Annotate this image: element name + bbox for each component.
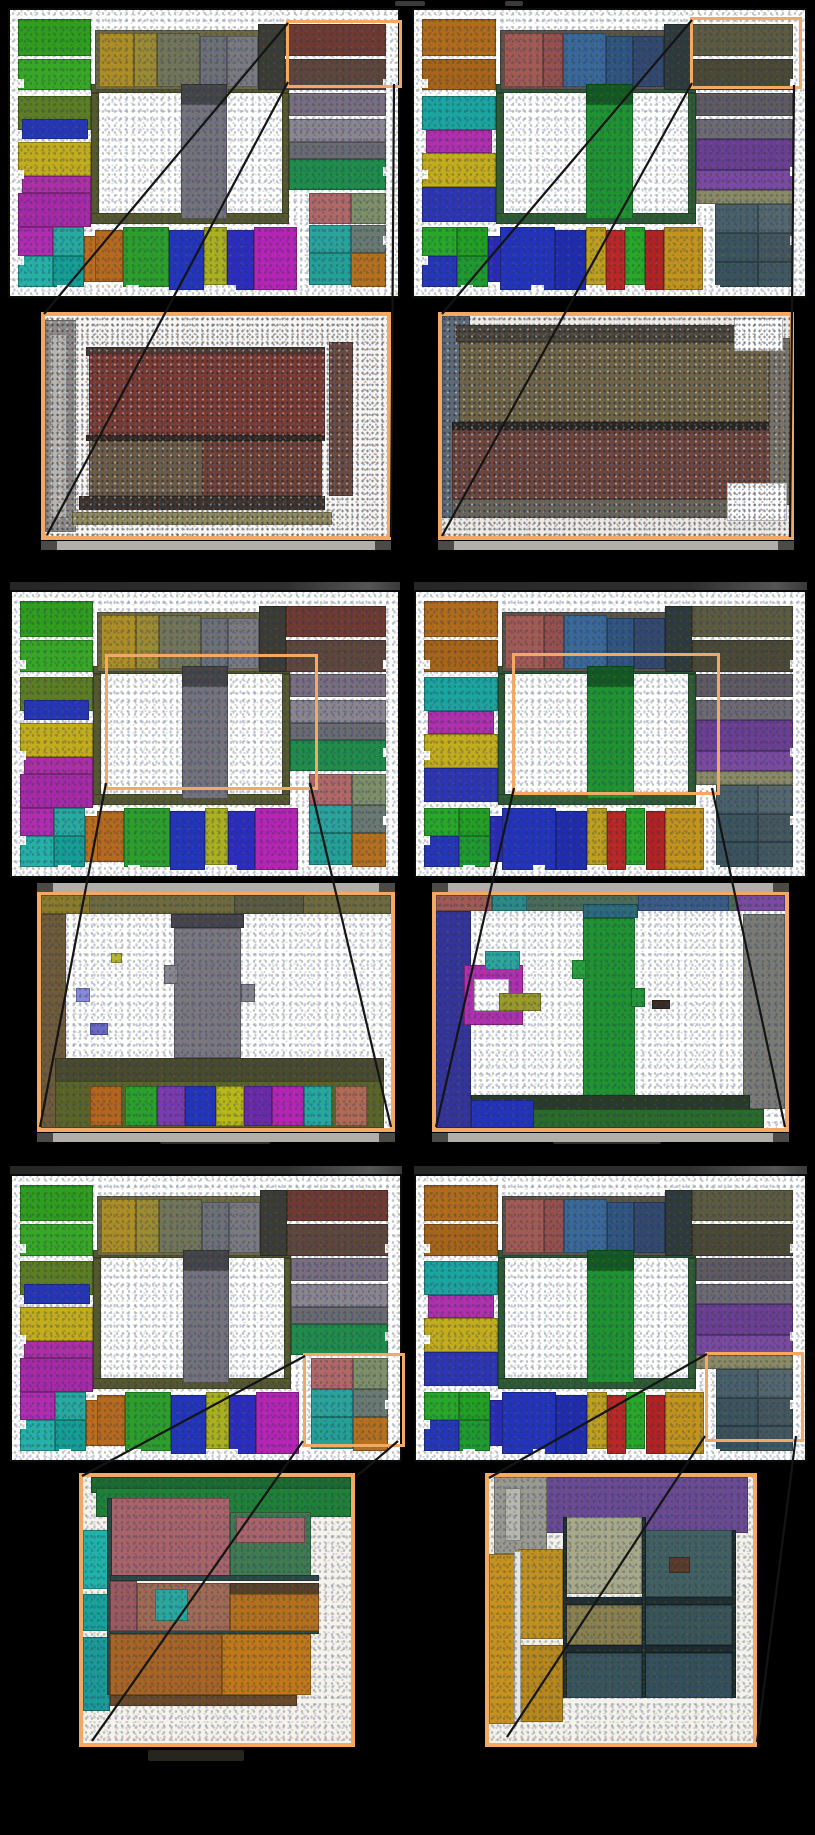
segment-block — [20, 640, 93, 671]
segment-block — [587, 1270, 634, 1384]
segment-block — [110, 1581, 137, 1632]
segment-block — [489, 1554, 515, 1724]
segment-block — [758, 785, 793, 813]
scan-gap-notch — [302, 865, 314, 874]
segment-block — [424, 1392, 459, 1420]
scan-gap-notch — [59, 1449, 71, 1458]
scan-gap-notch — [225, 1449, 237, 1458]
segment-block — [216, 1086, 244, 1126]
scan-gap-notch — [14, 1244, 26, 1253]
segment-block — [736, 895, 785, 911]
segment-block — [422, 59, 496, 90]
segment-block — [459, 1420, 490, 1451]
segment-block — [424, 808, 459, 836]
segment-block — [424, 677, 498, 711]
segment-block — [688, 1258, 696, 1383]
segment-block — [155, 1589, 187, 1621]
segment-block — [291, 1324, 388, 1355]
segment-block — [228, 811, 255, 871]
zoom-region-box-r1-left — [286, 20, 402, 88]
segment-block — [543, 33, 563, 87]
scan-gap-notch — [516, 11, 529, 20]
segment-block — [272, 1086, 304, 1126]
segment-block — [55, 1392, 86, 1420]
segment-block — [123, 227, 170, 287]
scan-gap-notch — [58, 865, 70, 874]
segment-block — [424, 1185, 498, 1222]
zoom-inset-row3-left — [79, 1473, 355, 1747]
segment-block — [54, 808, 85, 836]
segment-block — [185, 1086, 217, 1126]
segment-block — [72, 512, 332, 525]
segment-block — [457, 227, 488, 256]
strip-end-cap — [773, 1133, 789, 1142]
segment-block — [424, 640, 498, 671]
segment-block — [544, 1199, 563, 1253]
segment-block — [626, 808, 645, 865]
segment-block — [20, 1224, 94, 1255]
segment-block — [606, 36, 633, 87]
segment-block — [456, 325, 769, 343]
segment-block — [587, 1392, 606, 1449]
segment-block — [24, 1284, 90, 1304]
segment-block — [97, 811, 124, 862]
segment-block — [587, 808, 606, 865]
segment-block — [664, 227, 703, 290]
segment-block — [124, 808, 170, 868]
segment-block — [286, 606, 386, 637]
segment-block — [732, 1530, 736, 1698]
segment-block — [136, 1199, 159, 1253]
segment-block — [518, 1645, 563, 1722]
segment-block — [563, 33, 606, 87]
segment-block — [79, 496, 325, 509]
strip-end-cap — [778, 541, 794, 550]
inset-caption-strip — [438, 541, 794, 550]
scan-gap-notch — [463, 865, 475, 874]
segment-block — [289, 159, 386, 190]
segment-block — [566, 1605, 643, 1645]
zoom-inset-row1-right — [438, 312, 794, 540]
scan-gap-notch — [688, 1177, 700, 1186]
segment-block — [125, 1392, 172, 1452]
segment-block — [471, 1100, 534, 1128]
scan-gap-notch — [617, 11, 630, 20]
segment-block — [422, 153, 496, 187]
segment-block — [625, 227, 645, 284]
scan-gap-notch — [790, 1244, 802, 1253]
scan-gap-notch — [57, 285, 69, 294]
segment-block — [18, 19, 92, 56]
segment-block — [200, 36, 227, 87]
segment-block — [83, 1637, 110, 1711]
zoom-region-box-r2-left — [105, 654, 318, 790]
scan-gap-notch — [126, 285, 138, 294]
panel-top-bar — [10, 1166, 402, 1174]
strip-end-cap — [773, 883, 789, 892]
segment-block — [631, 988, 645, 1007]
segment-block — [170, 811, 205, 871]
zoom-region-box-r2-right — [512, 653, 720, 795]
scan-gap-notch — [533, 1449, 545, 1458]
scan-gap-notch — [113, 1177, 125, 1186]
segment-block — [86, 435, 325, 442]
segment-block — [110, 1498, 231, 1578]
segment-block — [254, 227, 297, 290]
inset-caption-strip — [41, 541, 391, 550]
segment-block — [607, 1395, 626, 1455]
scan-gap-notch — [385, 1244, 397, 1253]
segment-block — [424, 1224, 498, 1255]
segment-block — [291, 1307, 388, 1324]
scan-gap-notch — [790, 748, 802, 757]
segment-block — [514, 1551, 521, 1721]
segment-block — [227, 36, 258, 87]
scan-gap-notch — [112, 593, 124, 602]
segment-block — [696, 119, 794, 139]
segment-block — [607, 811, 626, 871]
segment-block — [351, 253, 386, 287]
scan-gap-notch — [688, 593, 700, 602]
segment-block — [502, 1392, 556, 1454]
segment-block — [309, 253, 352, 284]
scan-gap-notch — [14, 751, 26, 760]
panel-top-bar — [10, 582, 400, 590]
segment-block — [424, 1352, 498, 1386]
segment-block — [492, 895, 527, 911]
segment-block — [260, 1190, 287, 1255]
segment-block — [157, 33, 200, 87]
segment-block — [502, 808, 556, 870]
segment-block — [436, 895, 492, 911]
segment-block — [500, 227, 555, 290]
zoom-inset-row1-left — [41, 312, 391, 540]
scan-gap-notch — [790, 236, 803, 245]
scan-gap-notch — [418, 1335, 430, 1344]
panel-top-bar — [414, 1166, 807, 1174]
segment-block — [583, 904, 639, 918]
segment-block — [41, 895, 391, 914]
scan-gap-notch — [383, 236, 395, 245]
segment-block — [53, 227, 84, 256]
scan-gap-notch — [224, 865, 236, 874]
segment-block — [504, 33, 543, 87]
scan-gap-notch — [416, 256, 429, 265]
segment-block — [696, 1284, 793, 1304]
segment-block — [642, 1517, 646, 1698]
segment-block — [24, 1341, 94, 1358]
segment-block — [758, 204, 793, 233]
segment-block — [459, 808, 490, 836]
scan-gap-notch — [385, 1332, 397, 1341]
segment-block — [53, 256, 84, 287]
zoom-region-box-r3-left — [303, 1353, 405, 1447]
scan-gap-notch — [618, 1177, 630, 1186]
segment-block — [652, 1000, 669, 1009]
segment-block — [24, 757, 93, 774]
segment-block — [645, 230, 665, 290]
segment-block — [329, 342, 353, 496]
segment-block — [428, 1295, 494, 1318]
segment-block — [496, 93, 504, 219]
segment-block — [41, 895, 90, 914]
segment-block — [696, 93, 794, 116]
segment-block — [715, 262, 758, 288]
scan-gap-notch — [12, 170, 24, 179]
scan-gap-notch — [383, 816, 395, 825]
segment-block — [181, 104, 228, 218]
segment-block — [309, 833, 351, 864]
inset-caption-strip — [37, 883, 395, 892]
scan-gap-notch — [707, 285, 720, 294]
strip-end-cap — [41, 541, 57, 550]
scan-gap-notch — [416, 79, 429, 88]
scan-gap-notch — [128, 1449, 140, 1458]
segment-block — [758, 233, 793, 262]
segment-block — [309, 805, 351, 833]
segment-block — [634, 1202, 665, 1253]
segment-block — [183, 1270, 230, 1384]
segment-block — [586, 227, 606, 284]
scan-gap-notch — [284, 1177, 296, 1186]
segment-block — [734, 318, 783, 351]
segment-block — [289, 142, 386, 159]
segment-block — [291, 1258, 388, 1281]
scan-gap-notch — [418, 1244, 430, 1253]
zoom-region-box-r1-right — [690, 17, 802, 89]
segment-block — [20, 1392, 55, 1420]
segment-block — [202, 441, 322, 496]
scan-gap-notch — [629, 285, 642, 294]
strip-end-cap — [375, 541, 391, 550]
segment-block — [692, 1224, 793, 1255]
segment-block — [485, 951, 520, 970]
segment-block — [564, 1199, 607, 1253]
segment-block — [696, 170, 794, 190]
segment-block — [715, 233, 758, 262]
segment-block — [256, 1392, 299, 1454]
scan-gap-notch — [383, 167, 395, 176]
segment-block — [230, 1594, 318, 1631]
segment-block — [282, 93, 290, 219]
segment-block — [18, 193, 92, 227]
scan-gap-notch — [418, 660, 430, 669]
strip-end-cap — [379, 883, 395, 892]
segment-block — [424, 768, 498, 802]
segment-block — [645, 1653, 732, 1698]
segment-block — [93, 1258, 101, 1383]
segment-block — [692, 606, 793, 637]
inset-caption-strip — [432, 1133, 789, 1142]
segment-block — [335, 1086, 367, 1126]
scan-gap-notch — [533, 865, 545, 874]
segment-block — [89, 353, 325, 434]
strip-end-cap — [432, 883, 448, 892]
scan-gap-notch — [282, 11, 294, 20]
segment-block — [769, 338, 790, 505]
cropped-text-remnant — [148, 1750, 244, 1761]
segment-block — [125, 1086, 157, 1126]
cropped-text-remnant — [395, 1, 425, 6]
segment-block — [457, 256, 488, 287]
segment-block — [284, 1258, 292, 1383]
zoom-inset-row2-right — [432, 891, 789, 1132]
segment-block — [171, 914, 245, 928]
segment-block — [202, 1202, 229, 1253]
segment-block — [289, 119, 386, 142]
segment-block — [669, 1557, 690, 1573]
segment-block — [626, 1392, 645, 1449]
strip-end-cap — [438, 541, 454, 550]
segment-block — [583, 918, 635, 1100]
segment-block — [24, 700, 90, 720]
scan-gap-notch — [418, 1420, 430, 1429]
segment-block — [494, 1477, 547, 1554]
scan-gap-notch — [14, 1420, 26, 1429]
segment-block — [20, 808, 55, 836]
scan-gap-notch — [790, 1332, 802, 1341]
segment-block — [255, 808, 297, 870]
scan-gap-notch — [212, 11, 224, 20]
segment-block — [76, 988, 90, 1002]
scan-gap-notch — [708, 865, 720, 874]
segment-block — [566, 1645, 643, 1653]
scan-gap-notch — [12, 256, 24, 265]
segment-block — [91, 93, 99, 219]
segment-block — [309, 225, 352, 254]
strip-end-cap — [37, 883, 53, 892]
segment-block — [665, 1392, 704, 1454]
segment-block — [93, 674, 101, 799]
segment-block — [20, 1185, 94, 1222]
segment-block — [645, 1597, 732, 1605]
segment-block — [556, 1395, 587, 1455]
segment-block — [304, 1086, 332, 1126]
segment-block — [758, 842, 793, 868]
segment-block — [696, 1258, 793, 1281]
segment-block — [18, 227, 53, 256]
scan-gap-notch — [12, 79, 24, 88]
scan-gap-notch — [418, 836, 430, 845]
scan-gap-notch — [213, 593, 225, 602]
segment-block — [422, 187, 496, 221]
scan-gap-notch — [630, 1449, 642, 1458]
inset-caption-strip — [37, 1133, 395, 1142]
segment-block — [222, 1634, 310, 1695]
segment-block — [101, 1199, 136, 1253]
segment-block — [22, 176, 92, 193]
segment-block — [424, 734, 498, 768]
segment-block — [206, 1392, 229, 1449]
segment-block — [205, 808, 228, 865]
segment-block — [758, 262, 793, 288]
segment-block — [586, 104, 633, 218]
segment-block — [111, 953, 122, 962]
segment-block — [291, 1284, 388, 1307]
segment-block — [50, 334, 67, 519]
segment-block — [665, 1190, 692, 1255]
strip-end-cap — [432, 1133, 448, 1142]
scan-gap-notch — [282, 593, 294, 602]
callout-line — [757, 1436, 796, 1742]
segment-block — [606, 230, 626, 290]
segment-block — [20, 601, 93, 638]
segment-block — [633, 36, 664, 87]
segment-block — [422, 96, 496, 130]
segment-block — [95, 230, 122, 281]
segment-block — [164, 965, 178, 984]
panel-top-bar — [414, 582, 807, 590]
segment-block — [646, 1395, 665, 1455]
segment-block — [566, 1653, 643, 1698]
segment-block — [352, 774, 387, 805]
segment-block — [287, 1190, 388, 1221]
scan-gap-notch — [461, 285, 474, 294]
segment-block — [556, 811, 587, 871]
strip-end-cap — [37, 1133, 53, 1142]
scan-gap-notch — [383, 660, 395, 669]
segment-block — [566, 1517, 643, 1594]
strip-end-cap — [379, 1133, 395, 1142]
segment-block — [229, 1202, 260, 1253]
segment-block — [716, 785, 759, 813]
segment-block — [452, 422, 776, 431]
segment-block — [20, 1307, 94, 1341]
segment-block — [90, 1086, 122, 1126]
segment-block — [241, 984, 255, 1003]
segment-block — [692, 1190, 793, 1221]
scan-gap-notch — [531, 285, 544, 294]
segment-block — [459, 836, 490, 867]
segment-block — [309, 193, 352, 224]
scan-gap-notch — [301, 285, 313, 294]
segment-block — [572, 960, 586, 979]
segment-block — [97, 1395, 124, 1446]
segment-block — [716, 814, 759, 842]
segment-block — [289, 93, 386, 116]
segment-block — [696, 190, 794, 204]
segment-block — [110, 1575, 319, 1580]
segment-block — [498, 674, 506, 799]
segment-block — [20, 1358, 94, 1392]
segment-block — [18, 59, 92, 90]
segment-block — [664, 24, 691, 90]
segment-block — [55, 1420, 86, 1451]
scan-gap-notch — [790, 660, 802, 669]
segment-block — [426, 130, 492, 153]
segment-block — [134, 33, 157, 87]
segment-block — [352, 805, 387, 833]
segment-block — [428, 711, 494, 734]
scan-gap-notch — [303, 1449, 315, 1458]
segment-block — [229, 1395, 256, 1455]
scan-gap-notch — [14, 836, 26, 845]
segment-block — [258, 24, 285, 90]
scan-gap-notch — [463, 1449, 475, 1458]
segment-block — [159, 1199, 202, 1253]
segment-block — [688, 93, 696, 219]
segment-block — [715, 204, 758, 233]
cropped-text-remnant — [505, 1, 523, 6]
scan-gap-notch — [14, 1335, 26, 1344]
scan-gap-notch — [128, 865, 140, 874]
segment-block — [227, 230, 254, 290]
segment-block — [352, 833, 387, 867]
figure-canvas — [0, 0, 815, 1835]
segment-block — [99, 33, 134, 87]
scan-gap-notch — [517, 1177, 529, 1186]
segment-block — [157, 1086, 185, 1126]
